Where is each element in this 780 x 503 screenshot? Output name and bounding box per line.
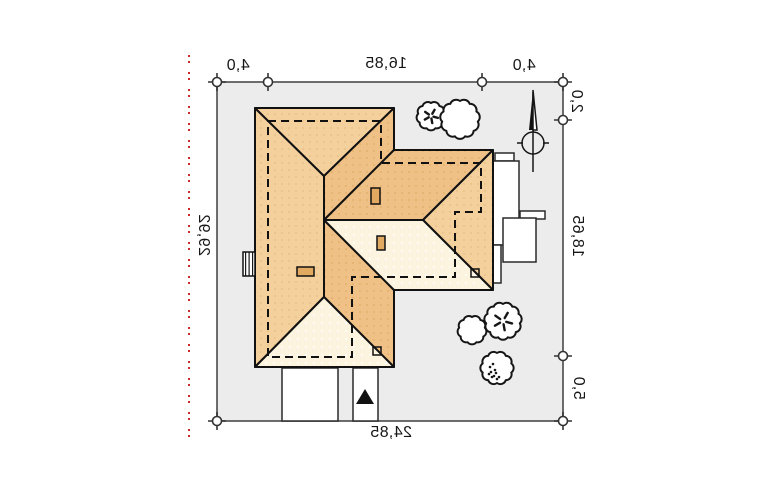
dim-bottom: 24,85 xyxy=(370,424,412,442)
terrace-step xyxy=(495,153,514,161)
west-wall-vent-icon xyxy=(243,252,255,276)
dim-left-side: 29,92 xyxy=(194,214,212,256)
dim-top-middle: 16,85 xyxy=(365,55,407,73)
tree-icon xyxy=(440,100,479,139)
dim-right-bottom: 5,0 xyxy=(569,376,587,399)
tree-icon xyxy=(458,316,487,344)
tree-icon xyxy=(480,352,513,384)
terrace-rail xyxy=(493,245,501,283)
tree-icon xyxy=(484,303,521,340)
chimney xyxy=(377,236,385,250)
dim-top-right: 4,0 xyxy=(512,57,535,75)
chimney xyxy=(371,188,380,204)
driveway xyxy=(282,368,338,421)
dim-right-top: 2,0 xyxy=(567,89,585,112)
entrance-path xyxy=(353,368,378,421)
dim-top-left: 4,0 xyxy=(226,57,249,75)
dim-right-middle: 18,65 xyxy=(568,215,586,257)
site-plan-canvas: 4,0 16,85 4,0 2,0 18,65 5,0 29,92 24,85 xyxy=(0,0,780,503)
terrace-lower xyxy=(503,218,536,262)
chimney xyxy=(297,267,314,276)
